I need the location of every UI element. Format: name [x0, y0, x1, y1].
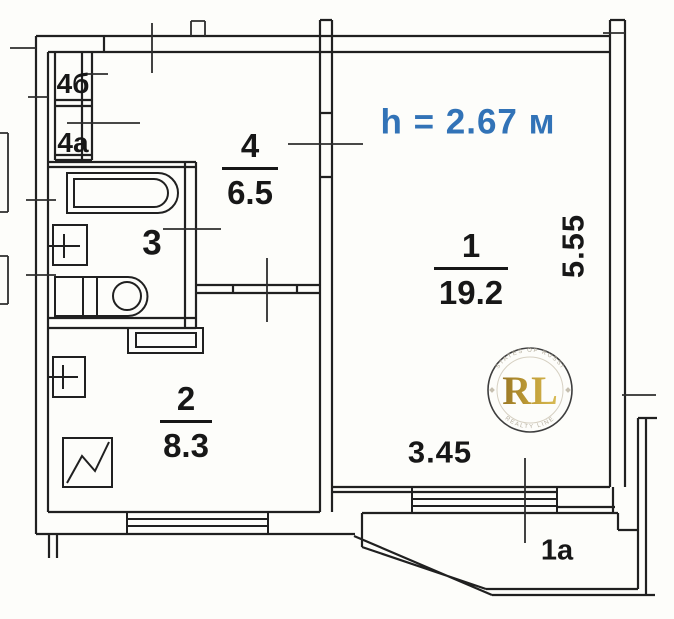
room-kitchen-number: 4 [241, 129, 259, 162]
balcony-number: 1а [541, 537, 573, 566]
exterior-walls [36, 20, 625, 558]
watermark-arc-top: ESTATES OF RUSSIA [0, 0, 565, 370]
toilet-icon [55, 277, 147, 316]
room-living-number: 1 [462, 229, 480, 262]
ceiling-height-note: h = 2.67 м [380, 105, 555, 140]
floor-plan: ESTATES OF RUSSIA REALTY LINE RL h = 2.6… [0, 0, 674, 619]
room-kitchen-label: 4 6.5 [222, 129, 278, 209]
sink-icon [48, 225, 87, 265]
dimension-height: 5.55 [558, 214, 589, 278]
room-kitchen-area: 6.5 [227, 176, 273, 209]
dimension-width: 3.45 [408, 437, 472, 468]
room-hall-label: 2 8.3 [160, 382, 212, 462]
wardrobe-icon [128, 328, 203, 353]
watermark-initials: RL [502, 368, 558, 413]
fraction-bar [160, 420, 212, 423]
room-living-area: 19.2 [439, 276, 503, 309]
window-symbols [127, 487, 557, 534]
electrical-panel-icon [63, 438, 112, 487]
closet-b-number: 4б [57, 70, 90, 98]
fraction-bar [222, 167, 278, 170]
room-hall-area: 8.3 [163, 429, 209, 462]
fraction-bar [434, 267, 508, 270]
floor-plan-drawing: ESTATES OF RUSSIA REALTY LINE RL [0, 0, 674, 619]
room-living-label: 1 19.2 [434, 229, 508, 309]
room-hall-number: 2 [177, 382, 195, 415]
closet-a-number: 4а [57, 129, 88, 157]
room-bath-number: 3 [142, 226, 161, 261]
radiator-icon [48, 357, 85, 397]
bathtub-icon [67, 173, 178, 213]
